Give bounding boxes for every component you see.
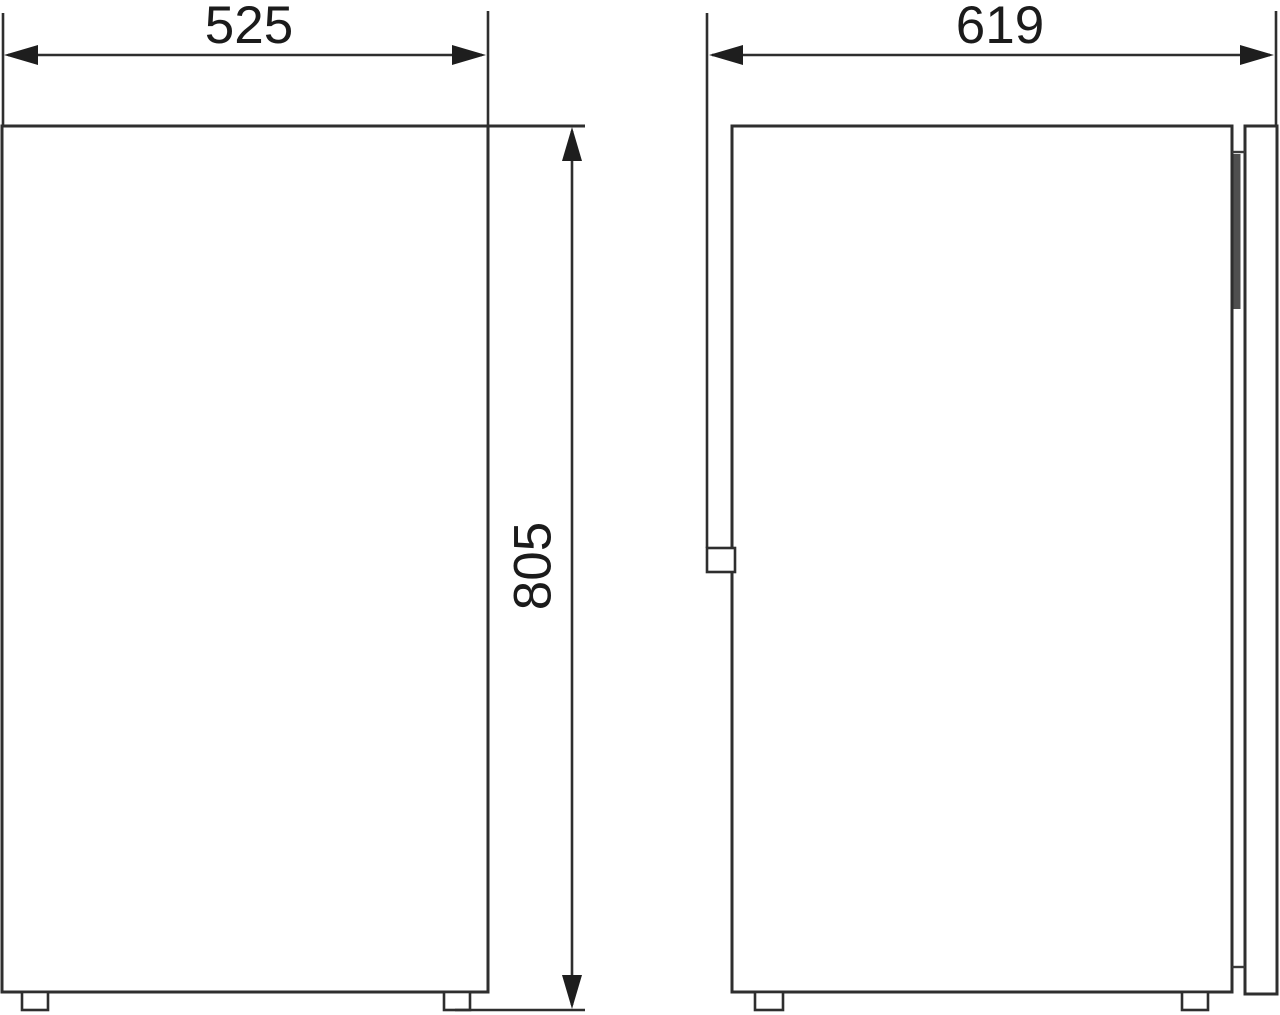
arrow-left-icon — [4, 45, 38, 65]
side-view-body — [732, 126, 1232, 992]
dimension-drawing: 525 805 — [0, 0, 1280, 1015]
rear-spacer-block — [707, 548, 735, 572]
arrow-right-icon — [1240, 45, 1274, 65]
front-view — [2, 126, 585, 1010]
height-dimension-label: 805 — [504, 522, 563, 610]
front-view-left-foot — [22, 992, 48, 1010]
arrow-right-icon — [452, 45, 486, 65]
side-view-door — [1245, 126, 1277, 994]
depth-dimension-label: 619 — [956, 0, 1044, 55]
front-view-right-foot — [444, 992, 470, 1010]
dimension-drawing-canvas: 525 805 — [0, 0, 1280, 1015]
width-dimension: 525 — [3, 0, 488, 126]
arrow-up-icon — [562, 127, 582, 161]
arrow-left-icon — [709, 45, 743, 65]
side-view — [707, 126, 1277, 1010]
arrow-down-icon — [562, 975, 582, 1009]
height-dimension: 805 — [504, 127, 583, 1009]
side-view-rear-foot — [755, 992, 783, 1010]
front-view-body — [2, 126, 488, 992]
width-dimension-label: 525 — [205, 0, 293, 55]
side-view-front-foot — [1182, 992, 1208, 1010]
